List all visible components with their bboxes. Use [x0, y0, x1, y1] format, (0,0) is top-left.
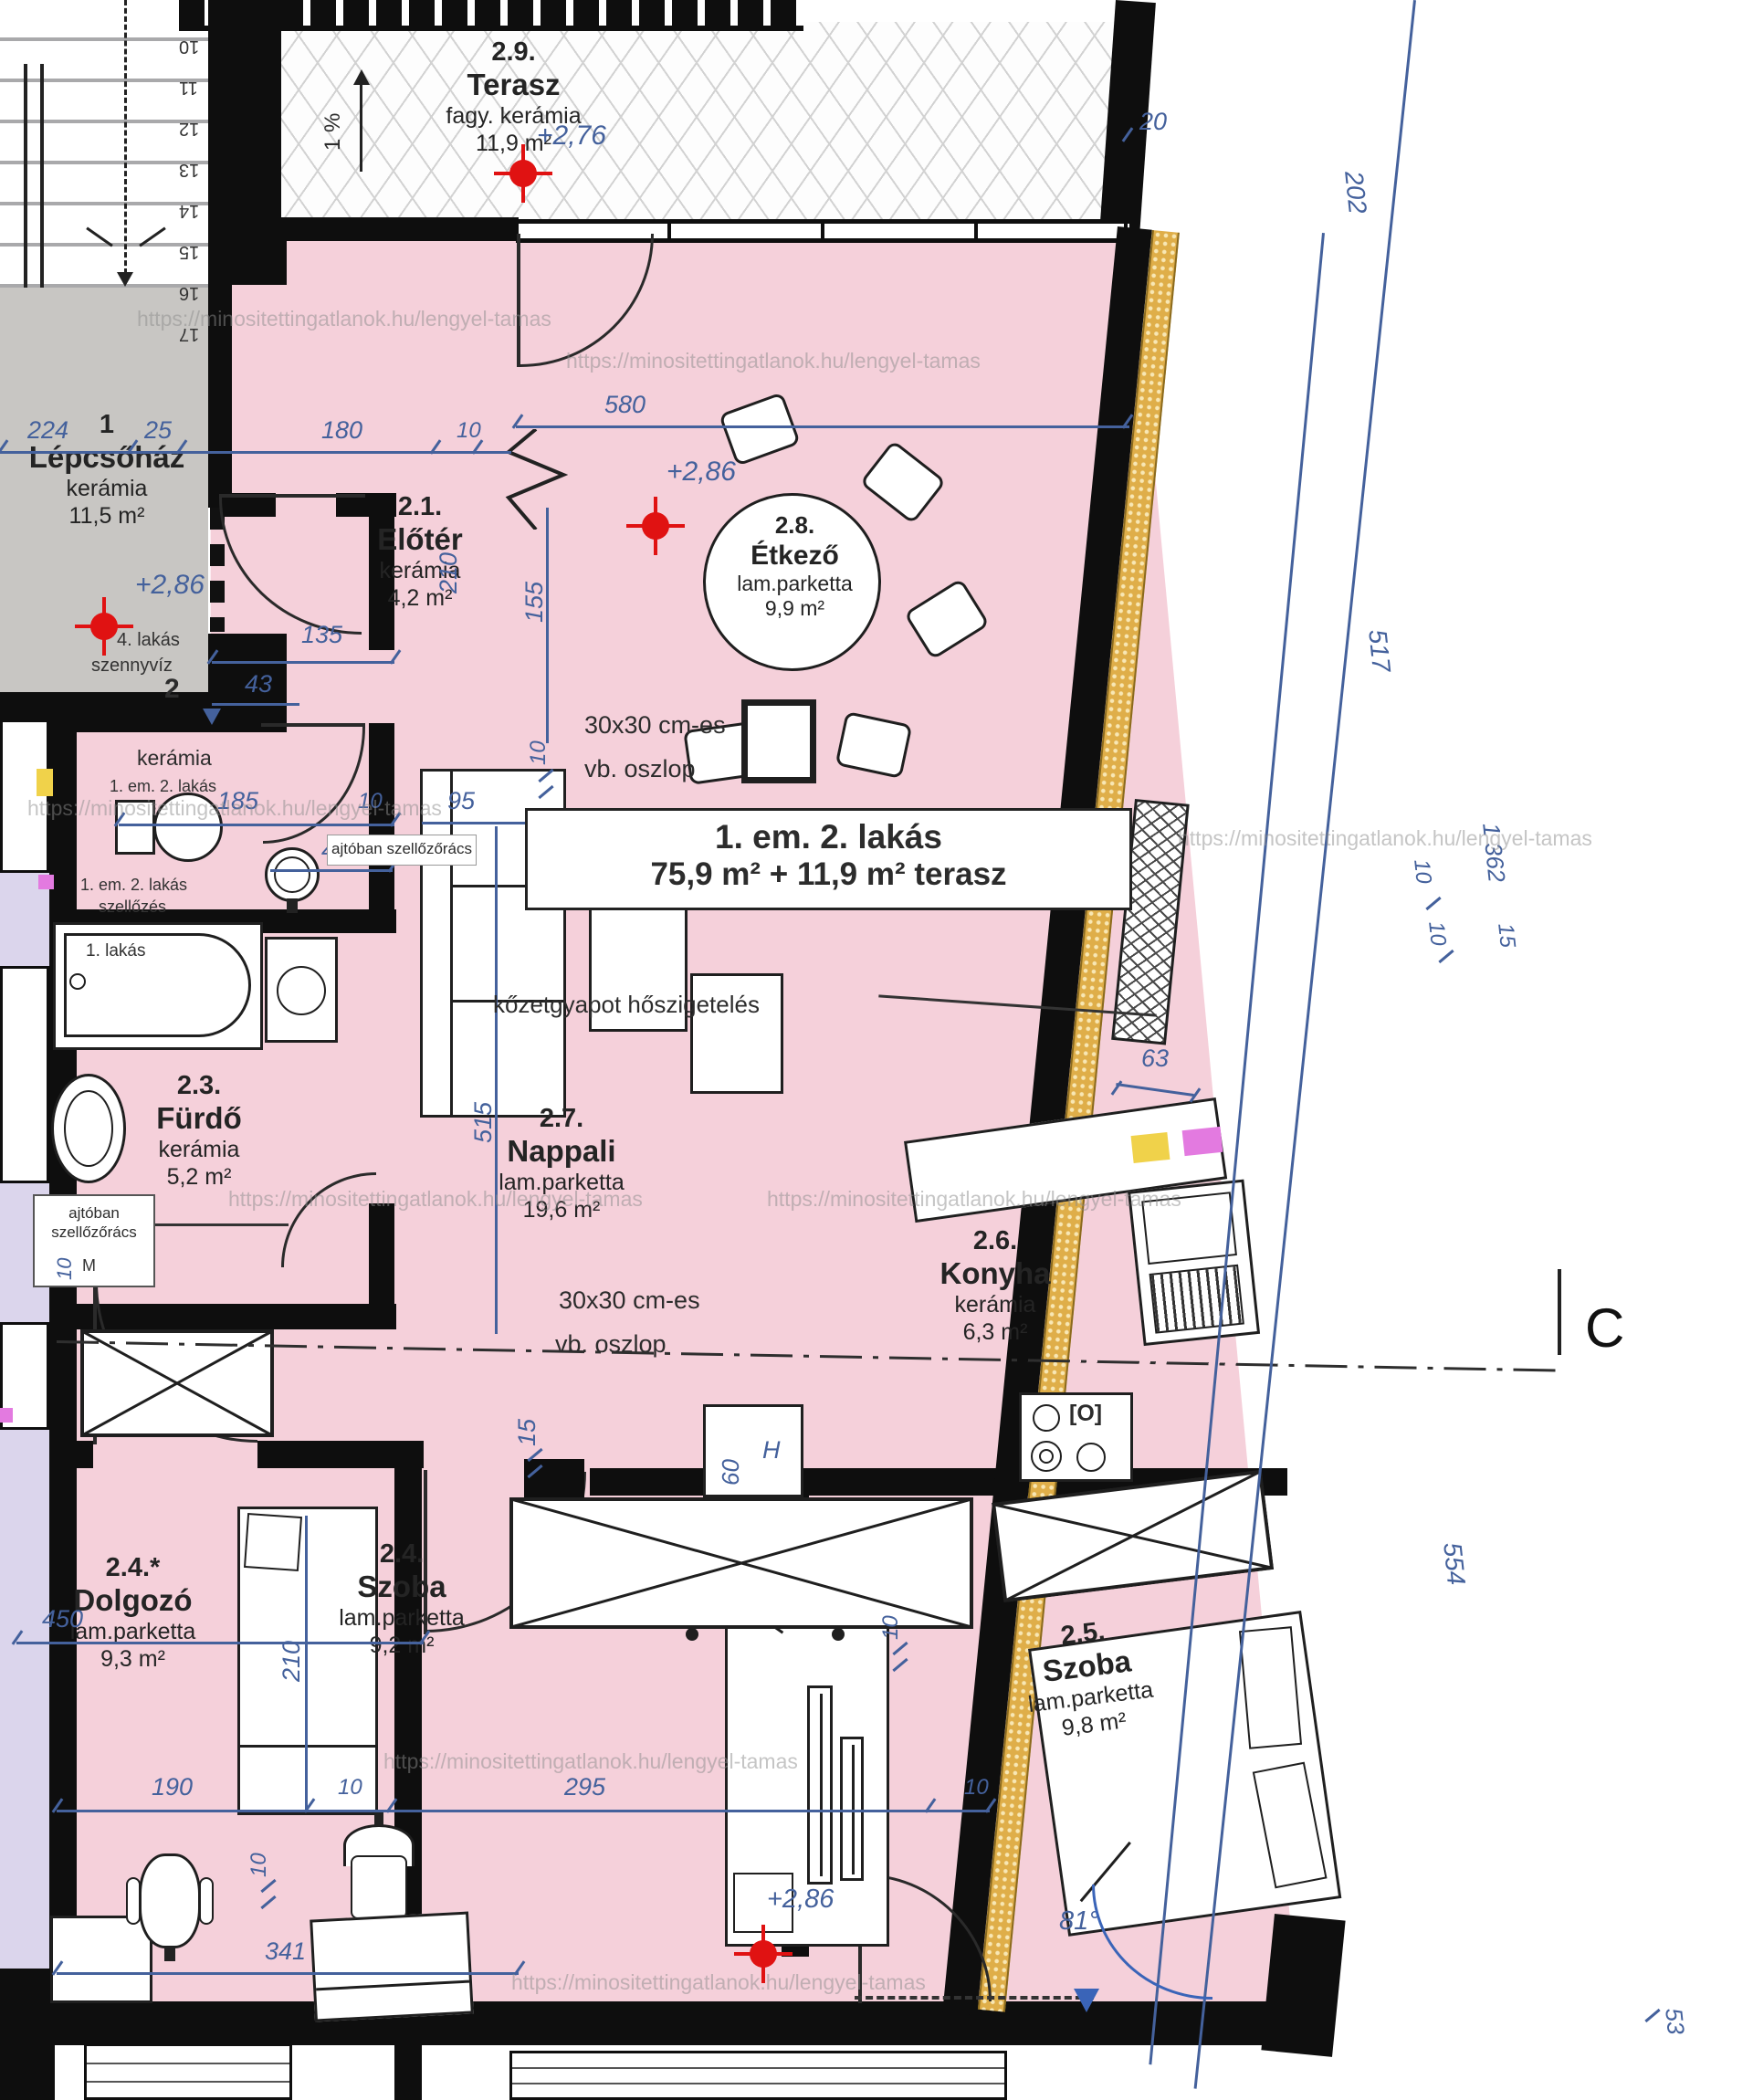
desk-2 [310, 1912, 474, 2022]
radiator [807, 1685, 833, 1885]
wall [285, 217, 519, 241]
room-area: 9,9 m² [719, 596, 870, 621]
room-material: kerámia [20, 476, 194, 503]
riser-marker-magenta [1182, 1127, 1223, 1156]
watermark-text: https://minositettingatlanok.hu/lengyel-… [383, 1749, 798, 1774]
room-number: 2.3. [108, 1070, 290, 1101]
m-mark: M [82, 1256, 96, 1276]
column-note-2: vb. oszlop [555, 1331, 667, 1359]
vent-zigzag-icon [504, 429, 568, 530]
level-floor-bottom: +2,86 [767, 1886, 834, 1913]
watermark-text: https://minositettingatlanok.hu/lengyel-… [137, 307, 551, 331]
dim-515: 515 [471, 1102, 496, 1143]
radiator [840, 1737, 864, 1881]
angle-arrow-icon [1074, 1989, 1099, 2012]
watermark-text: https://minositettingatlanok.hu/lengyel-… [228, 1187, 643, 1212]
room-area: 11,5 m² [20, 503, 194, 530]
fridge-letter: H [762, 1436, 781, 1465]
insulation-note: kőzetgyapot hőszigetelés [493, 992, 760, 1018]
watermark-text: https://minositettingatlanok.hu/lengyel-… [767, 1187, 1181, 1212]
dim-15: 15 [1494, 922, 1518, 949]
dim-450: 450 [42, 1607, 83, 1632]
bathtub-drain [69, 973, 86, 990]
washing-machine-drum [277, 966, 326, 1015]
room-label-konyha: 2.6. Konyha kerámia 6,3 m² [908, 1225, 1082, 1346]
dim-20: 20 [1139, 110, 1167, 134]
title-line2: 75,9 m² + 11,9 m² terasz [528, 856, 1129, 893]
stair-number: 14 [179, 201, 199, 221]
dim-95: 95 [447, 789, 475, 814]
dim-15: 15 [515, 1419, 540, 1446]
window [84, 2043, 292, 2100]
room-name: Étkező [719, 540, 870, 572]
room-number: 2.4. [310, 1538, 493, 1570]
room-material: lam.parketta [310, 1605, 493, 1633]
room-material: kerámia [908, 1292, 1082, 1319]
dim-line [0, 451, 511, 454]
dim-295: 295 [564, 1775, 605, 1800]
dim-10: 10 [1424, 920, 1449, 947]
dim-25: 25 [144, 418, 172, 443]
dim-554: 554 [1439, 1541, 1469, 1586]
wall-bottom-outer [49, 2001, 1320, 2045]
riser-marker-yellow [37, 769, 53, 796]
dim-60: 60 [719, 1459, 742, 1486]
concrete-column [741, 699, 816, 783]
riser-marker-yellow [1131, 1132, 1170, 1163]
room-label-eloter: 2.1. Előtér kerámia 4,2 m² [333, 491, 507, 612]
column-note: 30x30 cm-es [584, 712, 726, 740]
wall [49, 1441, 93, 1468]
dim-line [516, 425, 1129, 428]
terrace-floor [276, 22, 1118, 221]
room-number: 2.1. [333, 491, 507, 522]
vent-note-box: ajtóban szellőzőrács [327, 835, 477, 866]
riser-sewage-label: szennyvíz [91, 656, 173, 676]
room-number: 2.6. [908, 1225, 1082, 1256]
window [509, 2051, 1007, 2100]
room-area: 4,2 m² [333, 585, 507, 613]
dim-135: 135 [301, 623, 342, 647]
office-chair [126, 1844, 214, 1965]
room-material: lam.parketta [719, 572, 870, 596]
watermark-text: https://minositettingatlanok.hu/lengyel-… [27, 796, 442, 821]
bath-note: 1. lakás [86, 942, 145, 961]
dim-10: 10 [880, 1615, 902, 1640]
riser-marker-magenta [0, 1408, 13, 1423]
riser-vent-label: szellőzés [99, 898, 166, 917]
dim-517: 517 [1364, 628, 1394, 673]
room-area: 9,3 m² [26, 1646, 240, 1674]
room-name: Fürdő [108, 1101, 290, 1137]
dim-202: 202 [1340, 170, 1370, 215]
room-label-furdo: 2.3. Fürdő kerámia 5,2 m² [108, 1070, 290, 1191]
dim-224: 224 [27, 418, 68, 443]
wall-corner [1261, 1914, 1345, 2057]
riser-sewage-number: 2 [164, 674, 180, 704]
floor-plan: 10 11 12 13 14 15 16 17 1 % 2.9. Terasz … [0, 0, 1753, 2100]
dim-210-door: 210 [436, 552, 461, 593]
dim-10: 10 [528, 740, 550, 765]
level-floor: +2,86 [667, 458, 736, 486]
wc-material: kerámia [137, 747, 212, 770]
vent-callout-line [155, 1223, 289, 1226]
riser-sewage-label: 4. lakás [117, 630, 180, 650]
riser-wc-label: 1. em. 2. lakás [110, 778, 216, 796]
wall-left-outer [49, 703, 77, 2016]
section-tick [1558, 1269, 1561, 1355]
survey-point-icon [630, 500, 681, 551]
room-number: 2.4.* [26, 1552, 240, 1583]
room-label-etkezo: 2.8. Étkező lam.parketta 9,9 m² [719, 511, 870, 621]
stair-number: 10 [179, 37, 199, 57]
fridge: H 60 [703, 1404, 803, 1497]
dim-43: 43 [245, 672, 272, 697]
vent-note-box-2: ajtóban szellőzőrács 10 M [33, 1194, 155, 1287]
dim-10: 10 [338, 1777, 362, 1799]
wardrobe-szoba24 [509, 1497, 973, 1651]
washbasin-inner [64, 1090, 113, 1167]
stair-arrow-icon [117, 272, 133, 287]
level-floor-stair: +2,86 [135, 572, 205, 599]
dim-10: 10 [248, 1853, 270, 1877]
dim-341: 341 [265, 1939, 306, 1964]
dim-580: 580 [604, 393, 646, 417]
dim-10: 10 [964, 1777, 989, 1799]
room-name: Előtér [333, 522, 507, 558]
basin-spout [287, 898, 298, 913]
title-box: 1. em. 2. lakás 75,9 m² + 11,9 m² terasz [525, 808, 1132, 910]
dim-10: 10 [1410, 858, 1434, 885]
angle-label: 81° [1059, 1908, 1099, 1935]
dim-63: 63 [1141, 1046, 1169, 1071]
dim-10: 10 [55, 1258, 75, 1280]
door-vent-note: ajtóban szellőzőrács [35, 1196, 153, 1243]
dim-210-bed: 210 [279, 1641, 304, 1682]
slope-arrow-line [360, 84, 362, 172]
room-name: Szoba [310, 1570, 493, 1605]
column-note: vb. oszlop [584, 756, 696, 783]
corner-basin-inner [274, 856, 310, 893]
slope-label: 1 % [321, 113, 345, 151]
watermark-text: https://minositettingatlanok.hu/lengyel-… [566, 349, 981, 373]
riser-marker-magenta [38, 875, 54, 889]
terrace-left-wall [208, 0, 281, 228]
door-vent-note: ajtóban szellőzőrács [331, 840, 472, 857]
stair-number: 13 [179, 160, 199, 180]
watermark-text: https://minositettingatlanok.hu/lengyel-… [1178, 826, 1592, 851]
title-line1: 1. em. 2. lakás [528, 818, 1129, 856]
neighbor-room [0, 966, 49, 1183]
survey-point-icon [498, 148, 549, 199]
stair-handrail [24, 64, 44, 288]
stair-number: 16 [179, 283, 199, 303]
level-terasz: +2,76 [537, 122, 606, 150]
dim-arrow-icon [203, 709, 221, 725]
wall-bottom-left [0, 1969, 55, 2100]
room-material: kerámia [333, 558, 507, 585]
room-name: Konyha [908, 1256, 1082, 1292]
room-material: kerámia [108, 1137, 290, 1164]
stair-number: 15 [179, 242, 199, 262]
slope-arrow-icon [353, 69, 370, 85]
section-letter: C [1585, 1297, 1624, 1360]
dim-180: 180 [321, 418, 362, 443]
column-note-2: 30x30 cm-es [559, 1287, 700, 1315]
stair-number: 11 [179, 78, 198, 98]
threshold-dashed [855, 1996, 1094, 2000]
dim-155: 155 [522, 582, 547, 623]
cooktop: [O] [1019, 1392, 1133, 1482]
stair-number: 12 [179, 119, 199, 139]
dim-53: 53 [1662, 2007, 1688, 2035]
room-area: 9,2 m² [310, 1633, 493, 1660]
watermark-text: https://minositettingatlanok.hu/lengyel-… [511, 1970, 926, 1995]
room-area: 6,3 m² [908, 1319, 1082, 1347]
wall [208, 217, 287, 285]
room-name: Terasz [415, 68, 612, 103]
room-number: 2.9. [415, 37, 612, 68]
stair-centerline [124, 0, 127, 274]
riser-vent-label: 1. em. 2. lakás [80, 877, 187, 895]
dim-190: 190 [152, 1775, 193, 1800]
room-number: 2.8. [719, 511, 870, 540]
room-name: Lépcsőház [20, 440, 194, 476]
dim-10: 10 [457, 420, 481, 442]
